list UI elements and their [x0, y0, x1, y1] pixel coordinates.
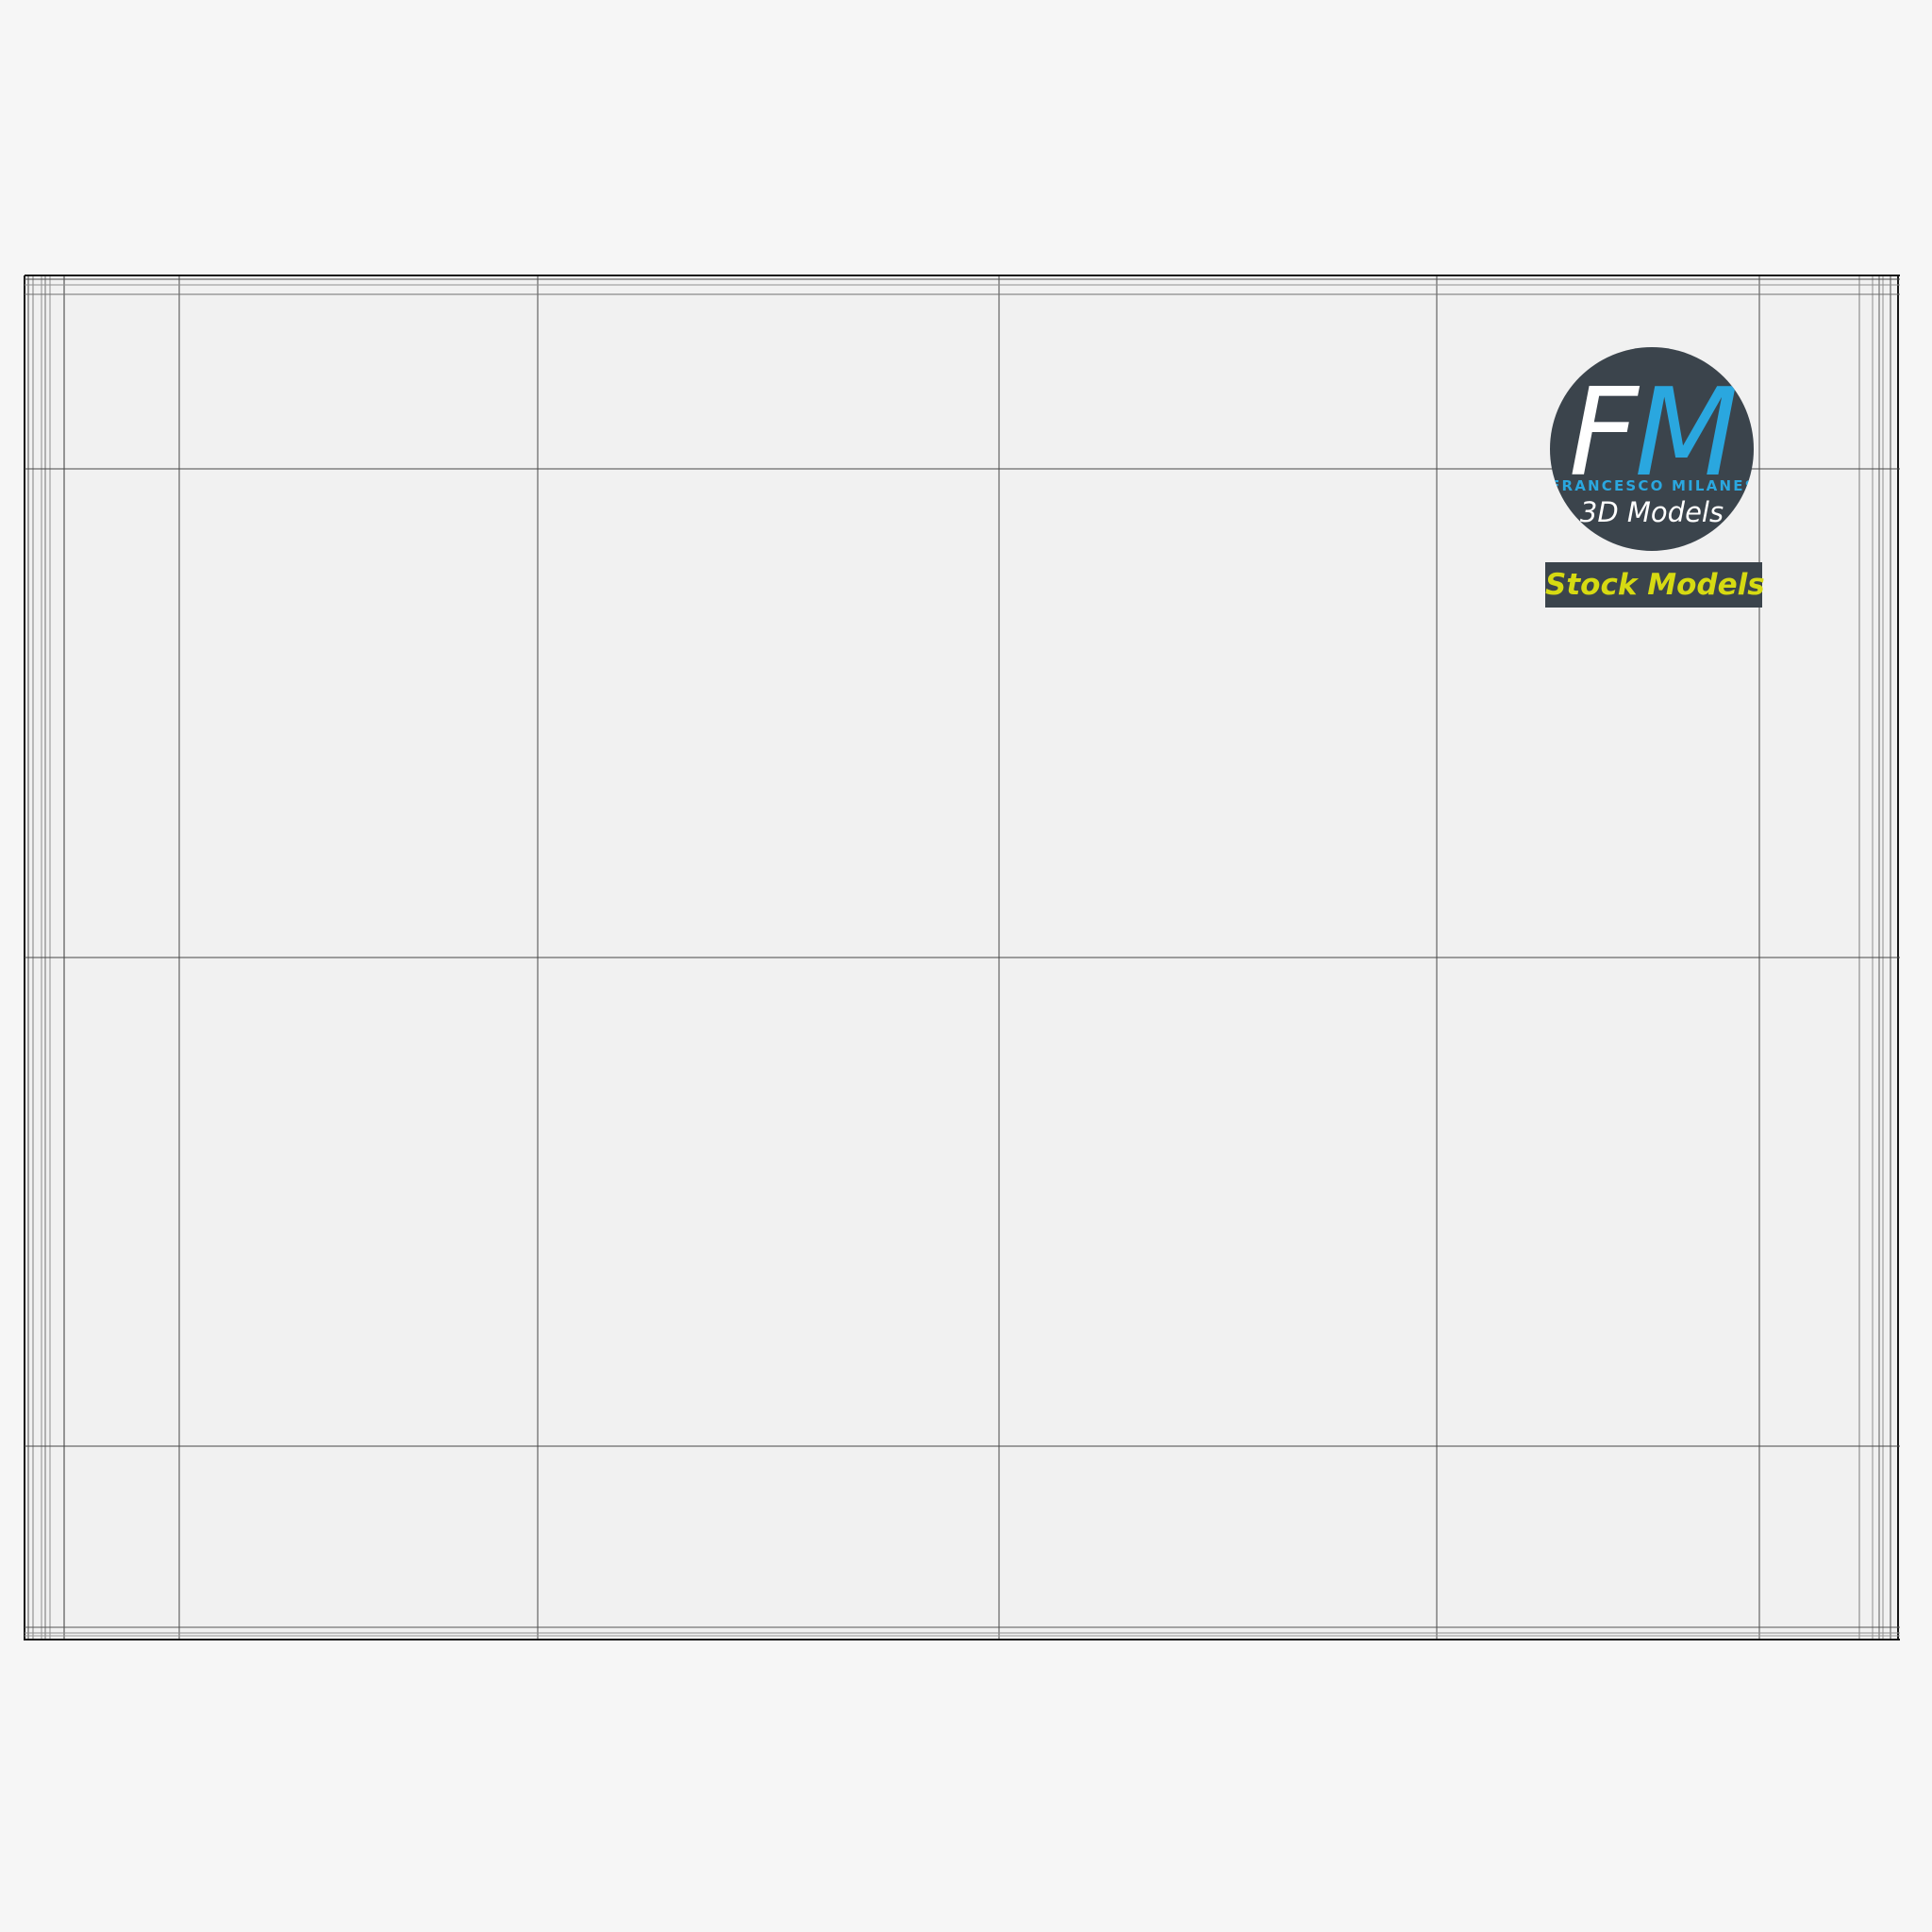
- stock-models-banner: Stock Models: [1545, 562, 1762, 608]
- stock-models-label: Stock Models: [1545, 562, 1765, 608]
- logo-author-name: FRANCESCO MILANESE: [1550, 477, 1754, 494]
- logo-initials: FM: [1550, 374, 1754, 494]
- fm-logo-circle: FM FRANCESCO MILANESE 3D Models: [1550, 347, 1754, 551]
- wireframe-panel: [0, 0, 1932, 1932]
- render-stage: FM FRANCESCO MILANESE 3D Models Stock Mo…: [0, 0, 1932, 1932]
- logo-tagline: 3D Models: [1550, 496, 1754, 528]
